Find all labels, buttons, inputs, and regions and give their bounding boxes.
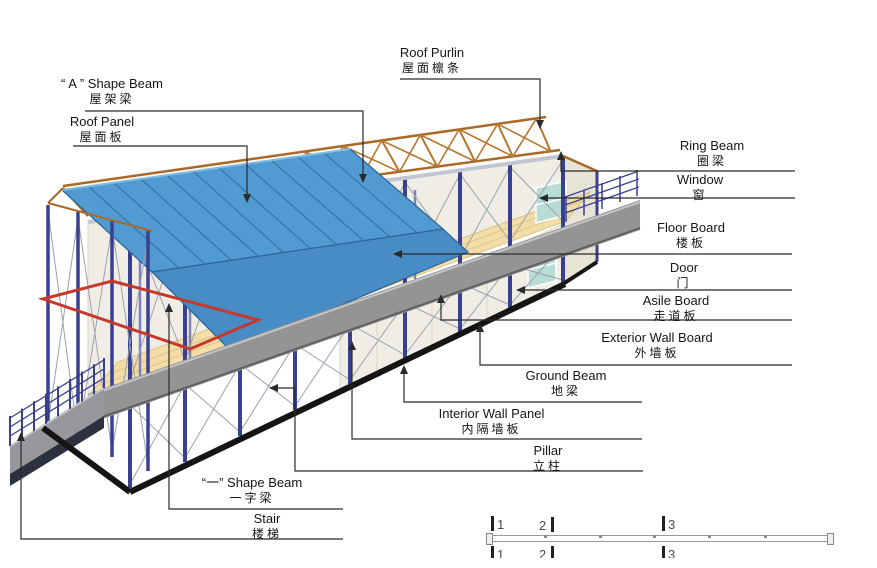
scale-tick-1	[491, 516, 494, 531]
scale-number-2: 2	[539, 518, 546, 533]
scale-bar-cap-left	[486, 533, 493, 545]
stair-graphic	[10, 358, 104, 486]
scale-number-3b: 3	[668, 547, 675, 558]
scale-number-3: 3	[668, 517, 675, 532]
label-roof-purlin-en: Roof Purlin	[372, 45, 492, 60]
label-asile-board-en: Asile Board	[621, 293, 731, 308]
label-door: Door 门	[629, 260, 739, 290]
label-window-zh: 窗	[645, 188, 755, 202]
label-a-shape-beam-zh: 屋架梁	[37, 92, 187, 106]
label-ring-beam: Ring Beam 圈梁	[656, 138, 768, 168]
scale-row-2: 1 2 3	[0, 545, 877, 558]
label-roof-panel: Roof Panel 屋面板	[47, 114, 157, 144]
label-stair: Stair 楼梯	[192, 511, 342, 541]
label-asile-board: Asile Board 走道板	[621, 293, 731, 323]
label-window-en: Window	[645, 172, 755, 187]
label-exterior-wall-board: Exterior Wall Board 外墙板	[577, 330, 737, 360]
label-a-shape-beam: “ A ” Shape Beam 屋架梁	[37, 76, 187, 106]
label-roof-panel-zh: 屋面板	[47, 130, 157, 144]
label-roof-purlin-zh: 屋面檩条	[372, 61, 492, 75]
label-ring-beam-en: Ring Beam	[656, 138, 768, 153]
label-roof-panel-en: Roof Panel	[47, 114, 157, 129]
label-yi-shape-beam-en: “一” Shape Beam	[177, 475, 327, 490]
label-stair-zh: 楼梯	[192, 527, 342, 541]
label-floor-board-zh: 楼板	[636, 236, 746, 250]
scale-number-1: 1	[497, 517, 504, 532]
diagram-canvas: “ A ” Shape Beam 屋架梁 Roof Panel 屋面板 Roof…	[0, 0, 877, 568]
label-door-zh: 门	[629, 276, 739, 290]
scale-number-1b: 1	[497, 547, 504, 558]
label-asile-board-zh: 走道板	[621, 309, 731, 323]
label-pillar-zh: 立柱	[493, 459, 603, 473]
scale-bar-mini-tick	[599, 535, 602, 538]
label-exterior-wall-board-zh: 外墙板	[577, 346, 737, 360]
label-yi-shape-beam-zh: 一字梁	[177, 491, 327, 505]
label-floor-board: Floor Board 楼板	[636, 220, 746, 250]
label-pillar: Pillar 立柱	[493, 443, 603, 473]
label-a-shape-beam-en: “ A ” Shape Beam	[37, 76, 187, 91]
label-door-en: Door	[629, 260, 739, 275]
label-floor-board-en: Floor Board	[636, 220, 746, 235]
label-ring-beam-zh: 圈梁	[656, 154, 768, 168]
scale-tick-2b	[551, 546, 554, 558]
scale-tick-1b	[491, 546, 494, 558]
scale-tick-3b	[662, 546, 665, 558]
scale-bar-mini-tick	[653, 535, 656, 538]
label-interior-wall-panel-en: Interior Wall Panel	[404, 406, 579, 421]
label-roof-purlin: Roof Purlin 屋面檩条	[372, 45, 492, 75]
label-ground-beam: Ground Beam 地梁	[496, 368, 636, 398]
scale-bar-cap-right	[827, 533, 834, 545]
scale-bar-mini-tick	[544, 535, 547, 538]
scale-number-2b: 2	[539, 547, 546, 558]
leader-roof-purlin	[400, 79, 540, 120]
scale-tick-2	[551, 517, 554, 532]
scale-bar-line	[487, 535, 833, 542]
label-pillar-en: Pillar	[493, 443, 603, 458]
label-window: Window 窗	[645, 172, 755, 202]
scale-tick-3	[662, 516, 665, 531]
label-exterior-wall-board-en: Exterior Wall Board	[577, 330, 737, 345]
scale-bar-mini-tick	[708, 535, 711, 538]
label-interior-wall-panel-zh: 内隔墙板	[404, 422, 579, 436]
label-ground-beam-zh: 地梁	[496, 384, 636, 398]
label-stair-en: Stair	[192, 511, 342, 526]
label-interior-wall-panel: Interior Wall Panel 内隔墙板	[404, 406, 579, 436]
label-ground-beam-en: Ground Beam	[496, 368, 636, 383]
scale-bar-mini-tick	[764, 535, 767, 538]
label-yi-shape-beam: “一” Shape Beam 一字梁	[177, 475, 327, 505]
